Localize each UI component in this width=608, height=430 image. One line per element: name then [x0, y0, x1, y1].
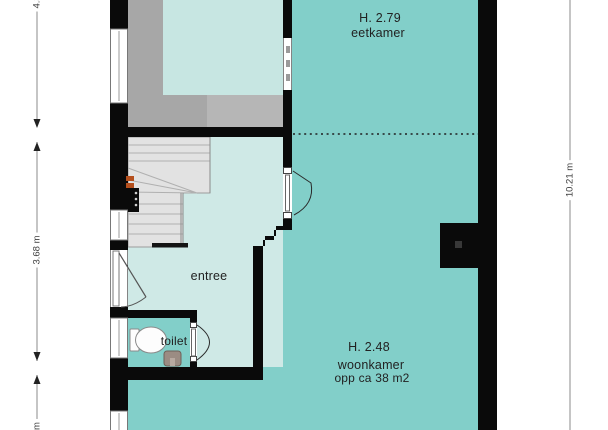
woonkamer-name-label: woonkamer: [338, 359, 404, 372]
stair-bottom-edge: [152, 243, 188, 248]
wall-topleft-divider: [110, 127, 292, 137]
wall-toilet-top: [110, 310, 197, 318]
floorplan-drawing: [0, 0, 608, 430]
wall-right-outer: [478, 0, 497, 430]
window-toilet: [111, 318, 128, 358]
entree-label: entree: [191, 270, 228, 283]
wall-entree-bottom: [110, 367, 263, 380]
dimension-left-middle-label: 3.68 m: [30, 232, 44, 267]
dimension-right-label: 10.21 m: [563, 160, 577, 200]
chimney-flue: [455, 241, 462, 248]
woonkamer-height-label: H. 2.48: [348, 341, 390, 354]
window-stairhall: [111, 210, 128, 240]
window-woonkamer-bottom: [111, 411, 128, 430]
toilet-label: toilet: [161, 335, 188, 347]
room-topleft-gray-light: [207, 95, 283, 127]
wall-hall-east-upper: [283, 133, 292, 167]
dimension-left-top-label: 4.32 m: [30, 0, 44, 12]
woonkamer-area-label: opp ca 38 m2: [334, 372, 409, 384]
opening-eetkamer-hatch: [284, 38, 292, 90]
floorplan-canvas: H. 2.79 eetkamer entree toilet H. 2.48 w…: [0, 0, 608, 430]
room-woonkamer-bottom-floor: [128, 380, 292, 430]
room-topleft-floor: [163, 0, 283, 95]
window-topleft: [111, 29, 128, 103]
hand-basin: [164, 351, 181, 366]
dimension-left-bottom-label: m: [30, 419, 44, 430]
eetkamer-height-label: H. 2.79: [359, 12, 401, 25]
meter-cabinet-dots: [135, 192, 138, 207]
eetkamer-name-label: eetkamer: [351, 27, 405, 40]
